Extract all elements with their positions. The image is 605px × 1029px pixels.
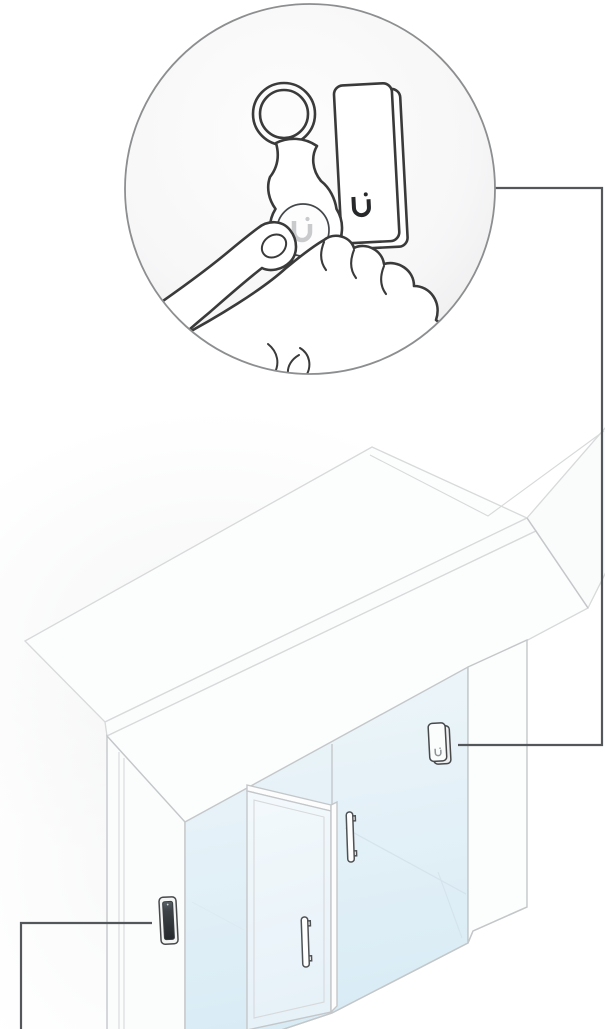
- open-glass-door: [247, 785, 337, 1029]
- installation-diagram: Access reader tap-to-unlock installation…: [0, 0, 605, 1029]
- detail-circle: [125, 4, 495, 400]
- wall-reader: [159, 897, 178, 945]
- right-side-wall: [468, 640, 527, 943]
- illustration-page: Access reader tap-to-unlock installation…: [0, 0, 605, 1029]
- wall-reader-screen: [163, 901, 175, 939]
- door-leading-edge: [331, 802, 337, 1012]
- door-reader: [428, 723, 451, 765]
- detail-reader-front-face: [334, 83, 400, 244]
- door-face: [247, 791, 331, 1029]
- building-illustration: [0, 410, 605, 1029]
- detail-reader: [334, 82, 408, 249]
